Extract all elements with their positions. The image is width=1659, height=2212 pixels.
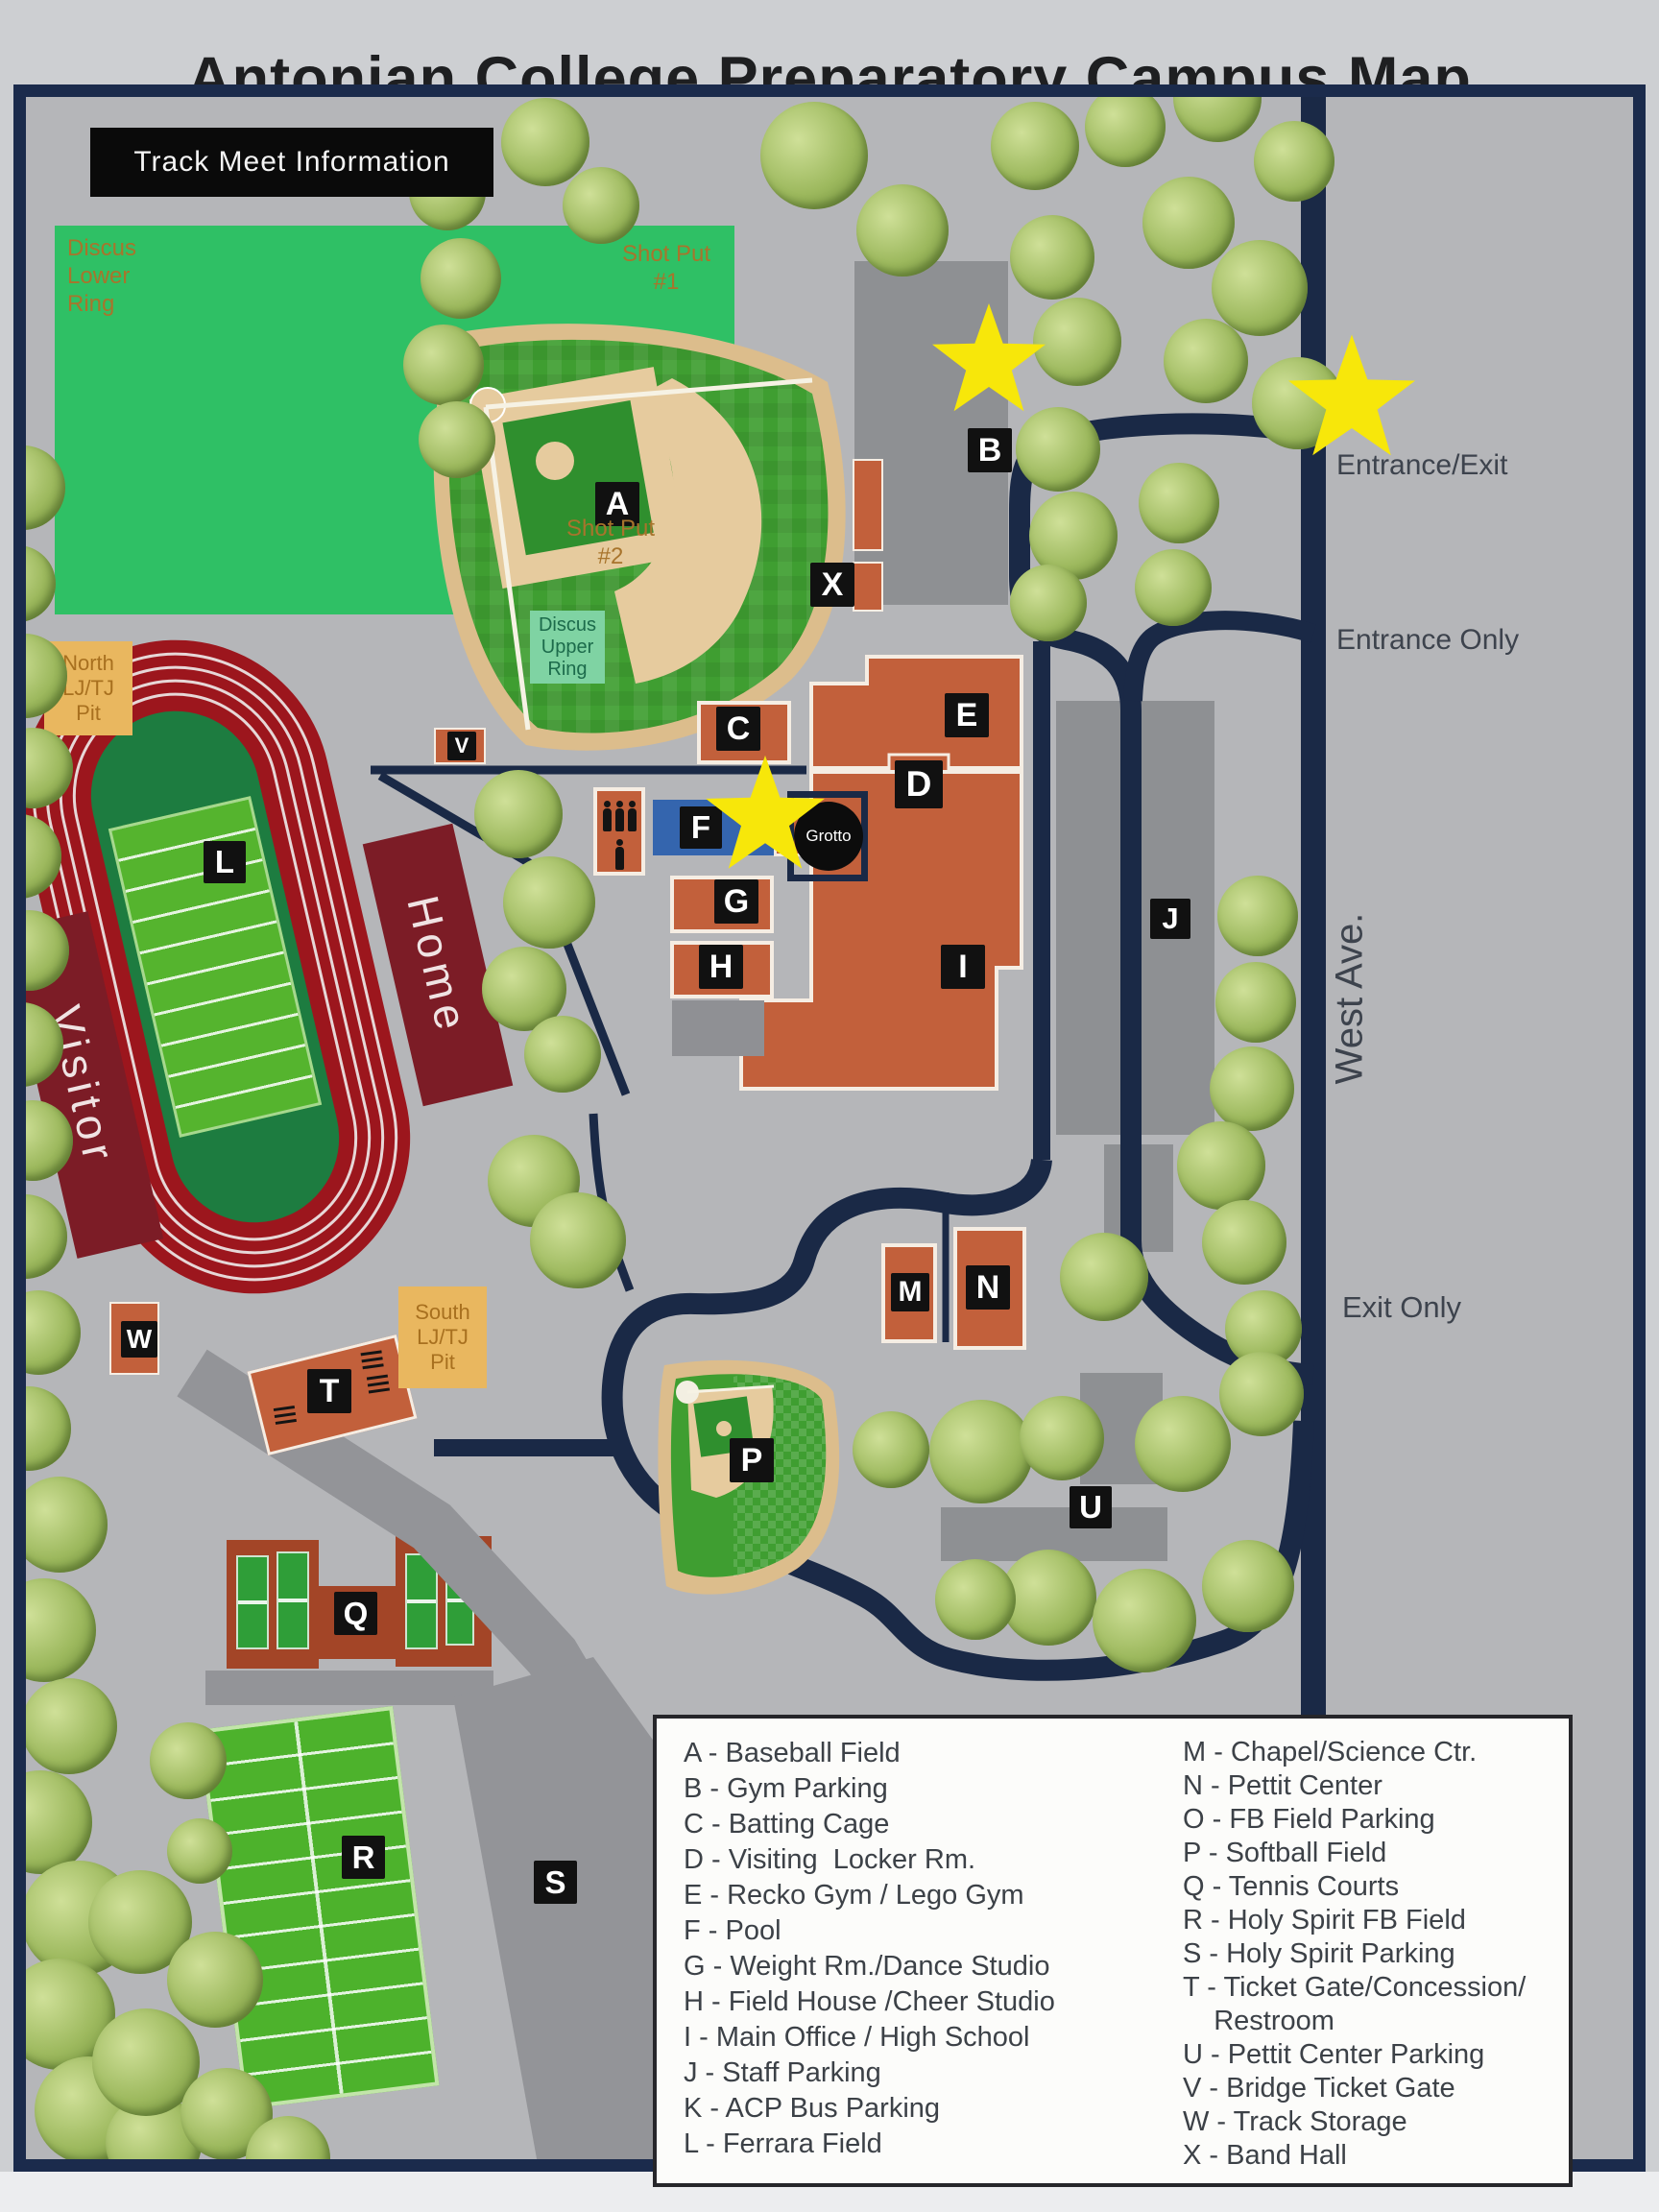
shot-put-2-label: Shot Put #2: [553, 515, 668, 570]
legend-item: B - Gym Parking: [684, 1771, 1183, 1807]
legend-item: G - Weight Rm./Dance Studio: [684, 1949, 1183, 1984]
legend-item: A - Baseball Field: [684, 1736, 1183, 1771]
legend-right-column: M - Chapel/Science Ctr.N - Pettit Center…: [1183, 1736, 1548, 2174]
legend-item: D - Visiting Locker Rm.: [684, 1842, 1183, 1878]
exit-only-label: Exit Only: [1342, 1290, 1461, 1325]
legend-item: C - Batting Cage: [684, 1807, 1183, 1842]
track-meet-banner: Track Meet Information: [90, 128, 493, 197]
entrance-exit-label: Entrance/Exit: [1336, 449, 1507, 482]
star-icon: [932, 303, 1046, 411]
legend-item: V - Bridge Ticket Gate: [1183, 2072, 1548, 2105]
legend-item: H - Field House /Cheer Studio: [684, 1984, 1183, 2020]
legend-item: N - Pettit Center: [1183, 1769, 1548, 1803]
track-meet-banner-label: Track Meet Information: [133, 146, 449, 179]
legend-item: X - Band Hall: [1183, 2139, 1548, 2173]
legend-item: W - Track Storage: [1183, 2105, 1548, 2139]
star-icon: [1288, 335, 1415, 456]
legend-item: S - Holy Spirit Parking: [1183, 1937, 1548, 1971]
west-ave-label: West Ave.: [1329, 913, 1372, 1085]
legend-item: I - Main Office / High School: [684, 2020, 1183, 2056]
star-icon: [706, 756, 825, 869]
legend-item: E - Recko Gym / Lego Gym: [684, 1878, 1183, 1913]
legend-item: O - FB Field Parking: [1183, 1803, 1548, 1837]
legend-item: L - Ferrara Field: [684, 2127, 1183, 2162]
entrance-only-label: Entrance Only: [1336, 624, 1519, 657]
legend-item: P - Softball Field: [1183, 1837, 1548, 1870]
legend-item: F - Pool: [684, 1913, 1183, 1949]
legend-item: J - Staff Parking: [684, 2056, 1183, 2091]
legend-item: T - Ticket Gate/Concession/ Restroom: [1183, 1971, 1548, 2038]
legend-item: R - Holy Spirit FB Field: [1183, 1904, 1548, 1937]
map-legend: A - Baseball FieldB - Gym ParkingC - Bat…: [653, 1715, 1573, 2187]
legend-item: U - Pettit Center Parking: [1183, 2038, 1548, 2072]
legend-item: Q - Tennis Courts: [1183, 1870, 1548, 1904]
campus-map-page: { "title": "Antonian College Preparatory…: [0, 0, 1659, 2212]
discus-lower-ring-label: Discus Lower Ring: [67, 234, 211, 318]
legend-left-column: A - Baseball FieldB - Gym ParkingC - Bat…: [684, 1736, 1183, 2174]
legend-item: M - Chapel/Science Ctr.: [1183, 1736, 1548, 1769]
shot-put-1-label: Shot Put #1: [611, 240, 722, 296]
legend-item: K - ACP Bus Parking: [684, 2091, 1183, 2127]
